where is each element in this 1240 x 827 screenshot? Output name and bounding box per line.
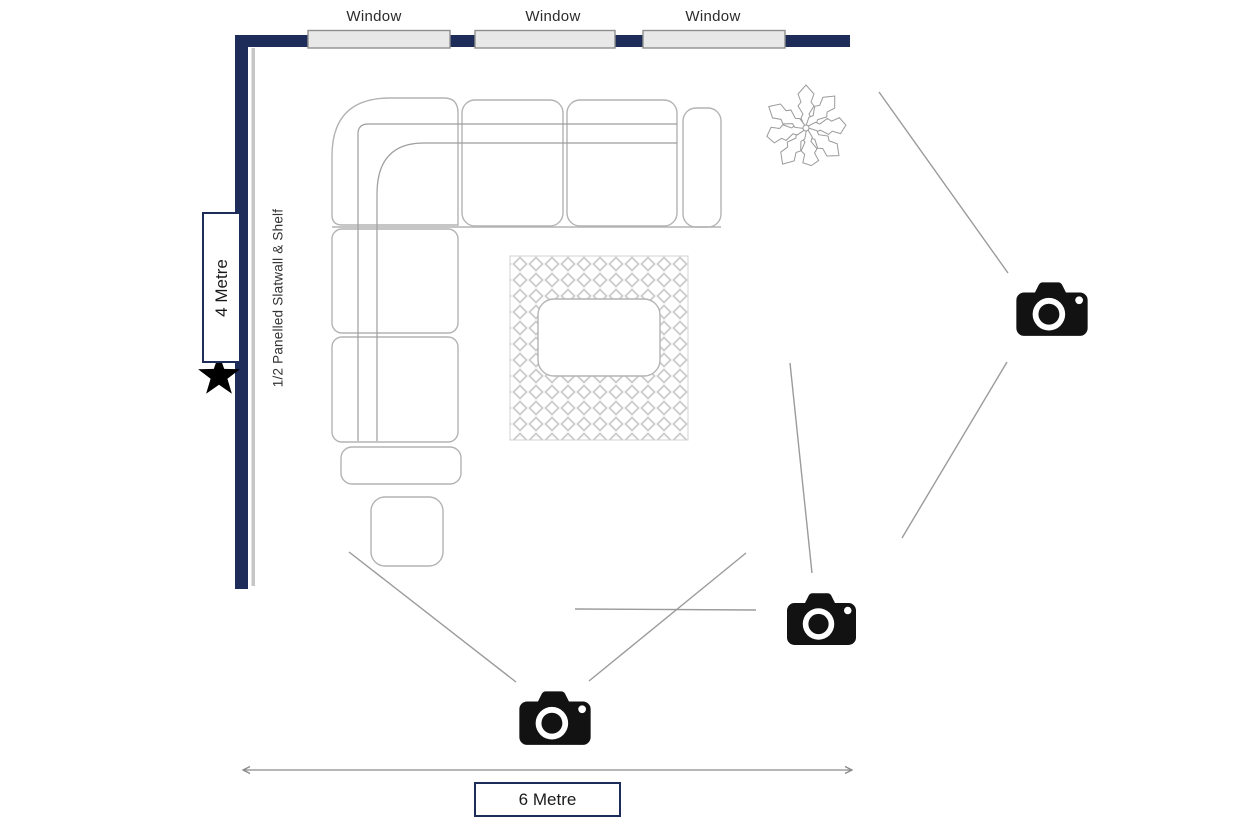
sight-line [902,362,1007,538]
sight-line [790,363,812,573]
floor-plan-page: Window Window Window 4 Metre 1/2 Panelle… [0,0,1240,827]
left-dimension-box: 4 Metre [202,212,241,363]
camera-icon [784,586,859,650]
sight-line [349,552,516,682]
camera-icon-glyph [516,686,594,748]
camera-icon-glyph [784,586,859,650]
sofa-side-cushion [332,337,458,442]
window-2 [475,31,615,49]
window-1 [308,31,450,49]
bottom-dimension-box: 6 Metre [474,782,621,817]
slatwall-note: 1/2 Panelled Slatwall & Shelf [271,209,286,387]
sofa-back-cushion [567,100,677,226]
windows [308,31,785,49]
window-label: Window [525,8,580,25]
coffee-table [538,299,660,376]
bottom-dimension-label: 6 Metre [519,790,577,810]
slatwall-inner-line [252,48,256,586]
left-dimension-label: 4 Metre [212,259,232,317]
sofa-back-cushion [462,100,563,226]
rug-group [510,256,688,440]
window-label: Window [685,8,740,25]
plant-icon [765,85,847,168]
floor-plan-drawing [0,0,1240,827]
camera-icon [1013,277,1091,339]
sofa-bottom-arm [341,447,461,484]
bottom-dimension-line [243,767,852,774]
sight-line [575,609,756,610]
window-3 [643,31,785,49]
sofa-side-cushion [332,229,458,333]
sight-line [589,553,746,681]
window-label: Window [346,8,401,25]
sofa-corner-cushion [332,98,458,225]
sight-line [879,92,1008,273]
camera-icon [516,686,594,748]
ottoman [371,497,443,566]
sofa-right-arm [683,108,721,227]
camera-icon-glyph [1013,277,1091,339]
